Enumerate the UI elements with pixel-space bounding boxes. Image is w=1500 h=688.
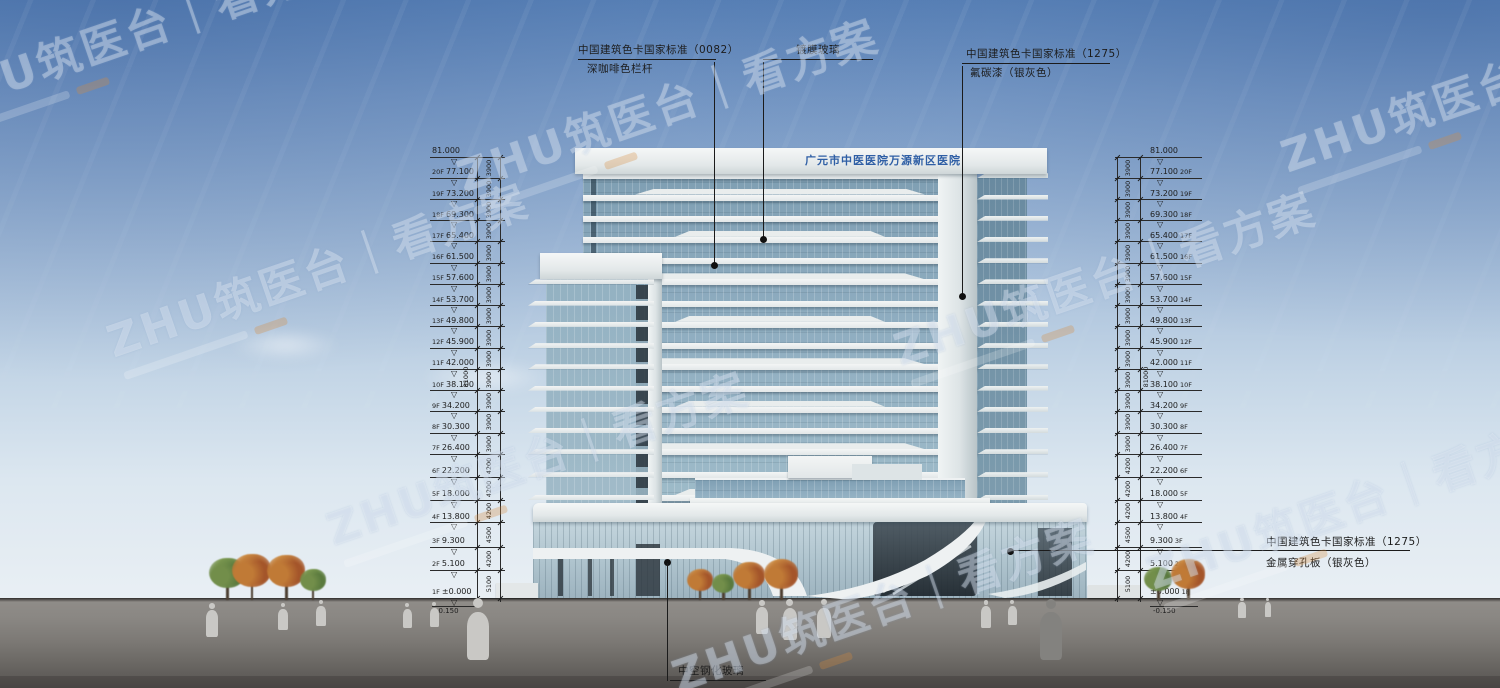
level-value: 13.800 <box>1150 512 1178 521</box>
floor-number: 4F <box>1180 513 1188 521</box>
floor-number: 14F <box>1180 296 1192 304</box>
level-value: 49.800 <box>446 316 474 325</box>
level-value: 61.500 <box>446 252 474 261</box>
floor-number: 9F <box>1180 402 1188 410</box>
leader-line-railing <box>714 62 715 264</box>
level-label-right: 45.90012F <box>1150 337 1194 347</box>
level-line-left <box>430 454 505 455</box>
cloud <box>230 330 340 360</box>
level-label-right: 57.60015F <box>1150 273 1194 283</box>
tower-parapet: 广元市中医医院万源新区医院 <box>575 148 1047 174</box>
floor-number: 11F <box>432 359 444 367</box>
level-label-left: 4F13.800 <box>432 512 470 522</box>
dim-chain-right-0 <box>1117 157 1118 602</box>
floor-dim-left: 5100 <box>481 575 497 593</box>
level-line-left <box>430 241 505 242</box>
tree-green <box>1144 567 1172 600</box>
level-marker-right: ▽ <box>1157 501 1163 509</box>
person-body <box>316 606 325 626</box>
building-elevation-scene: 广元市中医医院万源新区医院 81.000▽20F77.100▽19F73 <box>0 0 1500 688</box>
tree-canopy <box>300 569 326 591</box>
level-marker-right: ▽ <box>1157 285 1163 293</box>
level-marker-right: ▽ <box>1157 391 1163 399</box>
level-marker-left: ▽ <box>451 478 457 486</box>
floor-dim-left: 3900 <box>481 413 497 431</box>
level-label-right: 42.00011F <box>1150 358 1194 368</box>
left-slab-7F <box>528 449 654 454</box>
person-body <box>206 610 218 637</box>
person-head <box>319 600 323 604</box>
level-value: 53.700 <box>1150 295 1178 304</box>
level-line-left <box>430 178 505 179</box>
floor-dim-left: 3900 <box>481 265 497 283</box>
floor-number: 12F <box>432 338 444 346</box>
level-marker-left: ▽ <box>451 349 457 357</box>
leader-dot-fluorocarbon <box>959 293 966 300</box>
level-value: 69.300 <box>1150 210 1178 219</box>
floor-dim-right: 3900 <box>1120 244 1136 262</box>
level-marker-right: ▽ <box>1157 370 1163 378</box>
person-head <box>281 603 285 607</box>
level-marker-left: ▽ <box>451 264 457 272</box>
level-label-left: 7F26.400 <box>432 443 470 453</box>
tree-orange <box>1171 559 1206 600</box>
person-body <box>817 608 831 638</box>
level-marker-left: ▽ <box>451 571 457 579</box>
left-slab-5F <box>528 495 654 500</box>
floor-dim-right: 3900 <box>1120 307 1136 325</box>
annotation-fluorocarbon-line2: 氟碳漆（银灰色） <box>962 64 1110 80</box>
level-label-right: 13.8004F <box>1150 512 1190 522</box>
level-label-left: 13F49.800 <box>432 316 474 326</box>
level-line-left <box>430 326 505 327</box>
tower-right-pier <box>938 174 977 505</box>
tree-canopy <box>733 562 765 589</box>
floor-dim-left: 3900 <box>481 435 497 453</box>
floor-number: 15F <box>1180 274 1192 282</box>
level-value: 65.400 <box>446 231 474 240</box>
level-value: 73.200 <box>1150 189 1178 198</box>
tree-canopy <box>1171 559 1206 589</box>
level-value: 77.100 <box>1150 167 1178 176</box>
person-body <box>1265 602 1272 617</box>
level-value: 22.200 <box>442 466 470 475</box>
floor-number: 19F <box>1180 190 1192 198</box>
floor-number: 14F <box>432 296 444 304</box>
level-marker-right: ▽ <box>1157 523 1163 531</box>
level-label-right: 77.10020F <box>1150 167 1194 177</box>
level-marker-left: ▽ <box>451 548 457 556</box>
level-value: 81.000 <box>432 146 460 155</box>
left-tower-parapet <box>540 253 662 279</box>
floor-number: 17F <box>432 232 444 240</box>
level-marker-left: ▽ <box>451 306 457 314</box>
annotation-railing: 中国建筑色卡国家标准（0082） 深咖啡色栏杆 <box>578 44 716 76</box>
hospital-name-sign: 广元市中医医院万源新区医院 <box>805 152 961 168</box>
level-marker-right: ▽ <box>1157 158 1163 166</box>
person-head <box>405 603 409 607</box>
level-line-left <box>430 390 505 391</box>
level-value: 18.000 <box>1150 489 1178 498</box>
level-marker-left: ▽ <box>451 412 457 420</box>
tower-right-balcony-glass <box>977 178 1027 505</box>
right-balcony-13F <box>977 322 1048 327</box>
tree-orange <box>232 554 271 600</box>
level-label-left: 9F34.200 <box>432 401 470 411</box>
person-silhouette <box>1008 600 1017 625</box>
level-value: 26.400 <box>442 443 470 452</box>
level-value: 30.300 <box>442 422 470 431</box>
floor-number: 18F <box>1180 211 1192 219</box>
person-silhouette <box>206 603 218 637</box>
floor-number: 7F <box>1180 444 1188 452</box>
level-line-left <box>430 199 505 200</box>
floor-number: 7F <box>432 444 440 452</box>
floor-dim-left: 4200 <box>481 502 497 520</box>
floor-slab-20F <box>583 173 977 179</box>
floor-dim-left: 3900 <box>481 286 497 304</box>
level-label-left: 16F61.500 <box>432 252 474 262</box>
floor-dim-right: 3900 <box>1120 413 1136 431</box>
level-line-left <box>430 348 505 349</box>
floor-dim-left: 3900 <box>481 371 497 389</box>
tree-canopy <box>712 574 734 593</box>
level-label-left: 19F73.200 <box>432 189 474 199</box>
floor-number: 9F <box>432 402 440 410</box>
person-body <box>981 606 991 628</box>
level-label-right: 69.30018F <box>1150 210 1194 220</box>
annotation-railing-line2: 深咖啡色栏杆 <box>578 60 716 76</box>
level-line-left <box>430 433 505 434</box>
level-label-left: 6F22.200 <box>432 466 470 476</box>
level-value: 34.200 <box>1150 401 1178 410</box>
level-line-left <box>430 500 505 501</box>
balcony-parapet-13F <box>675 316 885 322</box>
floor-dim-left: 3900 <box>481 201 497 219</box>
floor-dim-right: 4200 <box>1120 457 1136 475</box>
level-marker-right: ▽ <box>1157 221 1163 229</box>
floor-number: 6F <box>432 467 440 475</box>
level-marker-left: ▽ <box>451 179 457 187</box>
floor-number: 8F <box>1180 423 1188 431</box>
left-slab-15F <box>528 279 654 284</box>
subgrade-label-right: -0.150 <box>1153 607 1176 615</box>
floor-dim-right: 4200 <box>1120 480 1136 498</box>
tree-canopy <box>687 569 713 591</box>
floor-number: 15F <box>432 274 444 282</box>
floor-number: 6F <box>1180 467 1188 475</box>
level-value: 73.200 <box>446 189 474 198</box>
floor-number: 13F <box>1180 317 1192 325</box>
floor-number: 3F <box>1175 537 1183 545</box>
level-value: 38.100 <box>1150 380 1178 389</box>
floor-dim-right: 3900 <box>1120 222 1136 240</box>
level-line-left <box>430 263 505 264</box>
floor-dim-left: 3900 <box>481 222 497 240</box>
floor-dim-right: 3900 <box>1120 265 1136 283</box>
floor-number: 1F <box>432 588 440 596</box>
leader-dot-railing <box>711 262 718 269</box>
level-label-left: 12F45.900 <box>432 337 474 347</box>
floor-number: 5F <box>432 490 440 498</box>
level-label-left: 1F±0.000 <box>432 587 471 597</box>
level-marker-left: ▽ <box>451 242 457 250</box>
right-balcony-11F <box>977 364 1048 369</box>
leader-line-fluorocarbon <box>962 66 963 296</box>
level-value: 13.800 <box>442 512 470 521</box>
level-label-right: 9.3003F <box>1150 536 1185 546</box>
level-line-left <box>430 284 505 285</box>
balcony-parapet-7F <box>635 443 925 449</box>
balcony-parapet-15F <box>635 273 925 279</box>
level-label-left: 15F57.600 <box>432 273 474 283</box>
floor-dim-right: 4200 <box>1120 550 1136 568</box>
level-value: 22.200 <box>1150 466 1178 475</box>
annotation-coated-glass-label: 镀膜玻璃 <box>763 44 873 60</box>
floor-number: 16F <box>432 253 444 261</box>
floor-number: 12F <box>1180 338 1192 346</box>
person-head <box>473 598 483 608</box>
podium-left-column <box>558 558 563 596</box>
person-head <box>432 602 436 606</box>
left-slab-6F <box>528 472 654 477</box>
floor-dim-left: 3900 <box>481 180 497 198</box>
level-label-left: 8F30.300 <box>432 422 470 432</box>
level-marker-right: ▽ <box>1157 327 1163 335</box>
floor-dim-left: 3900 <box>481 350 497 368</box>
balcony-parapet-19F <box>635 189 925 195</box>
person-silhouette <box>981 600 991 628</box>
level-value: 26.400 <box>1150 443 1178 452</box>
level-value: 57.600 <box>1150 273 1178 282</box>
tree-canopy <box>764 559 799 589</box>
level-marker-right: ▽ <box>1157 264 1163 272</box>
person-silhouette <box>1238 598 1245 618</box>
person-body <box>430 608 439 628</box>
floor-dim-right: 4200 <box>1120 502 1136 520</box>
person-head <box>786 599 793 606</box>
floor-dim-right: 3900 <box>1120 201 1136 219</box>
annotation-fluorocarbon-line1: 中国建筑色卡国家标准（1275） <box>962 48 1110 64</box>
floor-dim-right: 4500 <box>1120 526 1136 544</box>
floor-number: 2F <box>432 560 440 568</box>
person-head <box>1240 598 1243 601</box>
left-slab-13F <box>528 322 654 327</box>
left-slab-8F <box>528 428 654 433</box>
level-marker-right: ▽ <box>1157 242 1163 250</box>
tree-green <box>300 569 326 600</box>
right-balcony-6F <box>977 472 1048 477</box>
level-line-left <box>430 477 505 478</box>
level-line-left <box>430 570 505 571</box>
level-value: 77.100 <box>446 167 474 176</box>
level-value: 61.500 <box>1150 252 1178 261</box>
floor-number: 11F <box>1180 359 1192 367</box>
level-marker-right: ▽ <box>1157 434 1163 442</box>
tree-canopy <box>1144 567 1172 591</box>
annotation-perforated: 中国建筑色卡国家标准（1275） 金属穿孔板（银灰色） <box>1266 536 1427 570</box>
person-body <box>756 607 768 634</box>
level-value: 45.900 <box>446 337 474 346</box>
floor-number: 10F <box>432 381 444 389</box>
right-balcony-19F <box>977 195 1048 200</box>
floor-number: 20F <box>432 168 444 176</box>
person-head <box>984 600 989 605</box>
level-marker-right: ▽ <box>1157 455 1163 463</box>
level-marker-left: ▽ <box>451 370 457 378</box>
tree-orange <box>733 562 765 600</box>
balcony-parapet-11F <box>635 358 925 364</box>
balcony-parapet-9F <box>675 401 885 407</box>
overall-dim-left: 81000 <box>458 367 474 387</box>
person-silhouette <box>403 603 412 628</box>
level-label-left: 81.000 <box>432 146 460 156</box>
floor-number: 17F <box>1180 232 1192 240</box>
floor-slab-17F <box>583 237 977 243</box>
level-marker-left: ▽ <box>451 391 457 399</box>
level-marker-left: ▽ <box>451 501 457 509</box>
floor-dim-right: 3900 <box>1120 371 1136 389</box>
level-value: 9.300 <box>1150 536 1173 545</box>
annotation-coated-glass: 镀膜玻璃 <box>763 44 873 60</box>
annotation-perforated-line1: 中国建筑色卡国家标准（1275） <box>1266 536 1427 549</box>
floor-number: 20F <box>1180 168 1192 176</box>
level-label-left: 5F18.000 <box>432 489 470 499</box>
level-value: 81.000 <box>1150 146 1178 155</box>
leader-line-insulated-glass <box>667 563 668 681</box>
right-balcony-9F <box>977 407 1048 412</box>
level-line-left <box>430 157 505 158</box>
level-marker-left: ▽ <box>451 327 457 335</box>
floor-dim-right: 3900 <box>1120 350 1136 368</box>
annotation-perforated-line2: 金属穿孔板（银灰色） <box>1266 549 1427 570</box>
floor-dim-left: 4500 <box>481 526 497 544</box>
left-slab-11F <box>528 364 654 369</box>
floor-number: 4F <box>432 513 440 521</box>
right-balcony-12F <box>977 343 1048 348</box>
level-label-right: 49.80013F <box>1150 316 1194 326</box>
annotation-fluorocarbon: 中国建筑色卡国家标准（1275） 氟碳漆（银灰色） <box>962 48 1110 80</box>
level-label-right: 34.2009F <box>1150 401 1190 411</box>
floor-slab-19F <box>583 195 977 201</box>
tree-green <box>712 574 734 600</box>
left-slab-10F <box>528 386 654 391</box>
floor-dim-left: 3900 <box>481 329 497 347</box>
right-balcony-10F <box>977 386 1048 391</box>
right-balcony-17F <box>977 237 1048 242</box>
tree-canopy <box>232 554 271 587</box>
level-label-right: 73.20019F <box>1150 189 1194 199</box>
level-label-right: 22.2006F <box>1150 466 1190 476</box>
person-head <box>1010 600 1014 604</box>
level-marker-right: ▽ <box>1157 412 1163 420</box>
person-body <box>403 609 412 629</box>
person-silhouette <box>783 599 798 640</box>
floor-number: 13F <box>432 317 444 325</box>
right-balcony-15F <box>977 279 1048 284</box>
person-body <box>1040 612 1062 660</box>
floor-number: 16F <box>1180 253 1192 261</box>
penthouse-step <box>852 464 922 480</box>
level-label-left: 14F53.700 <box>432 295 474 305</box>
person-silhouette <box>316 600 325 626</box>
leader-dot-coated-glass <box>760 236 767 243</box>
level-marker-left: ▽ <box>451 200 457 208</box>
floor-number: 10F <box>1180 381 1192 389</box>
level-marker-left: ▽ <box>451 434 457 442</box>
level-line-left <box>430 547 505 548</box>
level-value: ±0.000 <box>442 587 472 596</box>
dim-chain-left-1 <box>500 157 501 602</box>
level-value: 30.300 <box>1150 422 1178 431</box>
level-line-left <box>430 305 505 306</box>
floor-dim-right: 5100 <box>1120 575 1136 593</box>
level-marker-left: ▽ <box>451 221 457 229</box>
subgrade-label-left: -0.150 <box>436 607 459 615</box>
level-label-left: 3F9.300 <box>432 536 465 546</box>
tree-orange <box>764 559 799 600</box>
floor-number: 8F <box>432 423 440 431</box>
level-label-left: 20F77.100 <box>432 167 474 177</box>
level-marker-right: ▽ <box>1157 478 1163 486</box>
level-value: 69.300 <box>446 210 474 219</box>
right-balcony-18F <box>977 216 1048 221</box>
person-body <box>1238 602 1245 618</box>
right-balcony-16F <box>977 258 1048 263</box>
level-marker-left: ▽ <box>451 455 457 463</box>
left-slab-9F <box>528 407 654 412</box>
floor-number: 3F <box>432 537 440 545</box>
level-label-right: 38.10010F <box>1150 380 1194 390</box>
person-silhouette <box>817 599 831 638</box>
person-body <box>278 609 288 630</box>
overall-dim-right: 81000 <box>1138 367 1154 387</box>
floor-dim-left: 4200 <box>481 550 497 568</box>
level-label-left: 18F69.300 <box>432 210 474 220</box>
balcony-parapet-17F <box>675 231 885 237</box>
floor-dim-left: 3900 <box>481 307 497 325</box>
dim-chain-left-0 <box>477 157 478 602</box>
floor-dim-right: 3900 <box>1120 329 1136 347</box>
floor-slab-18F <box>583 216 977 222</box>
floor-dim-left: 4200 <box>481 457 497 475</box>
level-label-right: 53.70014F <box>1150 295 1194 305</box>
floor-number: 18F <box>432 211 444 219</box>
right-balcony-8F <box>977 428 1048 433</box>
level-label-right: 18.0005F <box>1150 489 1190 499</box>
level-label-left: 2F5.100 <box>432 559 465 569</box>
level-value: 53.700 <box>446 295 474 304</box>
floor-dim-left: 4200 <box>481 480 497 498</box>
left-slab-14F <box>528 301 654 306</box>
floor-dim-right: 3900 <box>1120 286 1136 304</box>
person-silhouette <box>430 602 439 627</box>
level-label-right: 81.000 <box>1150 146 1178 156</box>
level-value: 5.100 <box>442 559 465 568</box>
floor-number: 19F <box>432 190 444 198</box>
person-silhouette <box>467 598 489 660</box>
level-marker-left: ▽ <box>451 523 457 531</box>
podium-roof-slab <box>533 503 1087 522</box>
person-body <box>783 608 798 640</box>
person-head <box>759 600 765 606</box>
floor-dim-right: 3900 <box>1120 180 1136 198</box>
annotation-railing-line1: 中国建筑色卡国家标准（0082） <box>578 44 716 60</box>
annotation-insulated-glass: 中空钢化玻璃 <box>670 665 766 681</box>
level-marker-right: ▽ <box>1157 306 1163 314</box>
right-balcony-14F <box>977 301 1048 306</box>
tree-orange <box>687 569 713 600</box>
